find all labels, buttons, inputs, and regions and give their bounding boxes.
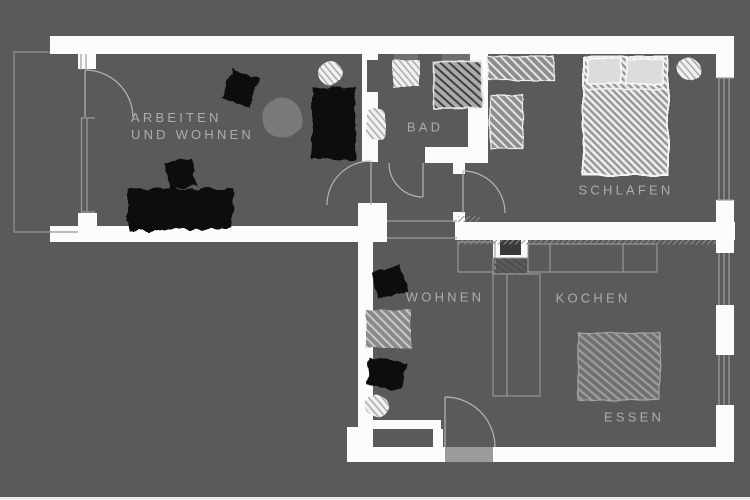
wall-right-lower-c [716, 405, 734, 462]
wohnen-chair-b [366, 358, 406, 390]
room-label-essen: ESSEN [604, 409, 664, 426]
desk-chair [164, 158, 196, 189]
wall-pier [78, 213, 97, 226]
wall-right-upper-b [716, 200, 734, 222]
floor-plan: ARBEITEN UND WOHNEN BAD SCHLAFEN WOHNEN … [0, 0, 750, 500]
sink [392, 60, 420, 87]
counter-tick-band [457, 240, 716, 245]
door-arbeiten [327, 161, 371, 205]
wall-junction [358, 203, 387, 228]
round-table [262, 98, 302, 138]
door-schlafen [463, 171, 505, 213]
plant-arbeiten [318, 61, 342, 85]
hall-beam-lines [387, 221, 457, 238]
wall-niche-bar [358, 420, 441, 429]
plant-wohnen [366, 395, 388, 417]
balcony-outline [14, 52, 78, 232]
counter-left [458, 242, 495, 272]
window-essen-1 [719, 253, 729, 305]
bookshelf [312, 87, 356, 160]
desk [127, 188, 233, 229]
door-bad [389, 163, 423, 197]
wall-bad-bottom [425, 147, 487, 163]
room-label-schlafen: SCHLAFEN [579, 182, 674, 199]
counter-partition [493, 274, 507, 396]
door-entrance [445, 397, 495, 447]
wall-bottom-b [493, 447, 718, 462]
pillow-right [626, 59, 663, 84]
wall-bottom-a [347, 447, 445, 462]
counter-divisions [550, 244, 623, 272]
plant-schlafen [678, 58, 700, 80]
room-label-wohnen: WOHNEN [406, 289, 484, 306]
window-schlafen [717, 78, 733, 200]
washing-machine [433, 62, 482, 108]
side-chair [221, 69, 260, 108]
dining-table [578, 333, 660, 400]
dresser [490, 95, 523, 148]
window-essen-2 [719, 355, 729, 405]
wohnen-chair-a [371, 265, 407, 299]
balcony [14, 52, 78, 232]
room-label-arbeiten-wohnen: ARBEITEN UND WOHNEN [131, 109, 254, 143]
wall-top [50, 36, 734, 54]
wall-corner-bottom-left [347, 427, 358, 462]
double-bed [583, 57, 668, 175]
wall-right-lower-a [716, 240, 734, 253]
wall-niche-post [433, 429, 443, 447]
wall-slot [367, 60, 378, 92]
room-label-bad: BAD [407, 119, 443, 136]
wall-right-lower-b [716, 305, 734, 355]
pillow-left [587, 59, 621, 84]
wohnen-side-table [366, 310, 412, 348]
window-left [81, 54, 95, 212]
entrance-door-threshold [445, 447, 493, 462]
room-label-kochen: KOCHEN [556, 290, 631, 307]
shaft-hatch [493, 258, 528, 274]
hall-tick-band [458, 216, 480, 222]
door-balcony [85, 70, 133, 117]
wall-right-upper-a [716, 54, 734, 78]
wardrobe [488, 57, 554, 80]
counter-right [528, 244, 657, 272]
counter-strip [507, 274, 540, 396]
toilet [367, 109, 385, 140]
